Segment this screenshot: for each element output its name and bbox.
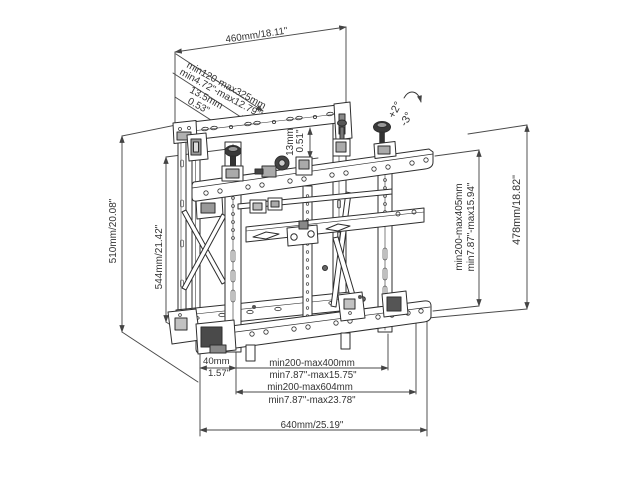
svg-text:544mm/21.42": 544mm/21.42"	[154, 224, 165, 289]
svg-text:0.51": 0.51"	[295, 129, 306, 152]
svg-text:min200-max405mm: min200-max405mm	[454, 183, 465, 270]
svg-text:1.57": 1.57"	[208, 368, 230, 379]
svg-text:min7.87"-max15.94": min7.87"-max15.94"	[466, 182, 477, 271]
svg-text:min7.87"-max15.75": min7.87"-max15.75"	[269, 370, 357, 381]
svg-text:min7.87"-max23.78": min7.87"-max23.78"	[268, 395, 356, 406]
svg-text:460mm/18.11": 460mm/18.11"	[225, 25, 289, 45]
svg-text:640mm/25.19": 640mm/25.19"	[281, 420, 344, 431]
svg-text:min200-max400mm: min200-max400mm	[269, 358, 355, 369]
svg-text:478mm/18.82": 478mm/18.82"	[511, 175, 523, 245]
svg-text:min200-max604mm: min200-max604mm	[267, 382, 353, 393]
svg-text:-3°: -3°	[398, 110, 415, 128]
svg-text:510mm/20.08": 510mm/20.08"	[108, 198, 119, 263]
svg-text:40mm: 40mm	[203, 356, 230, 367]
